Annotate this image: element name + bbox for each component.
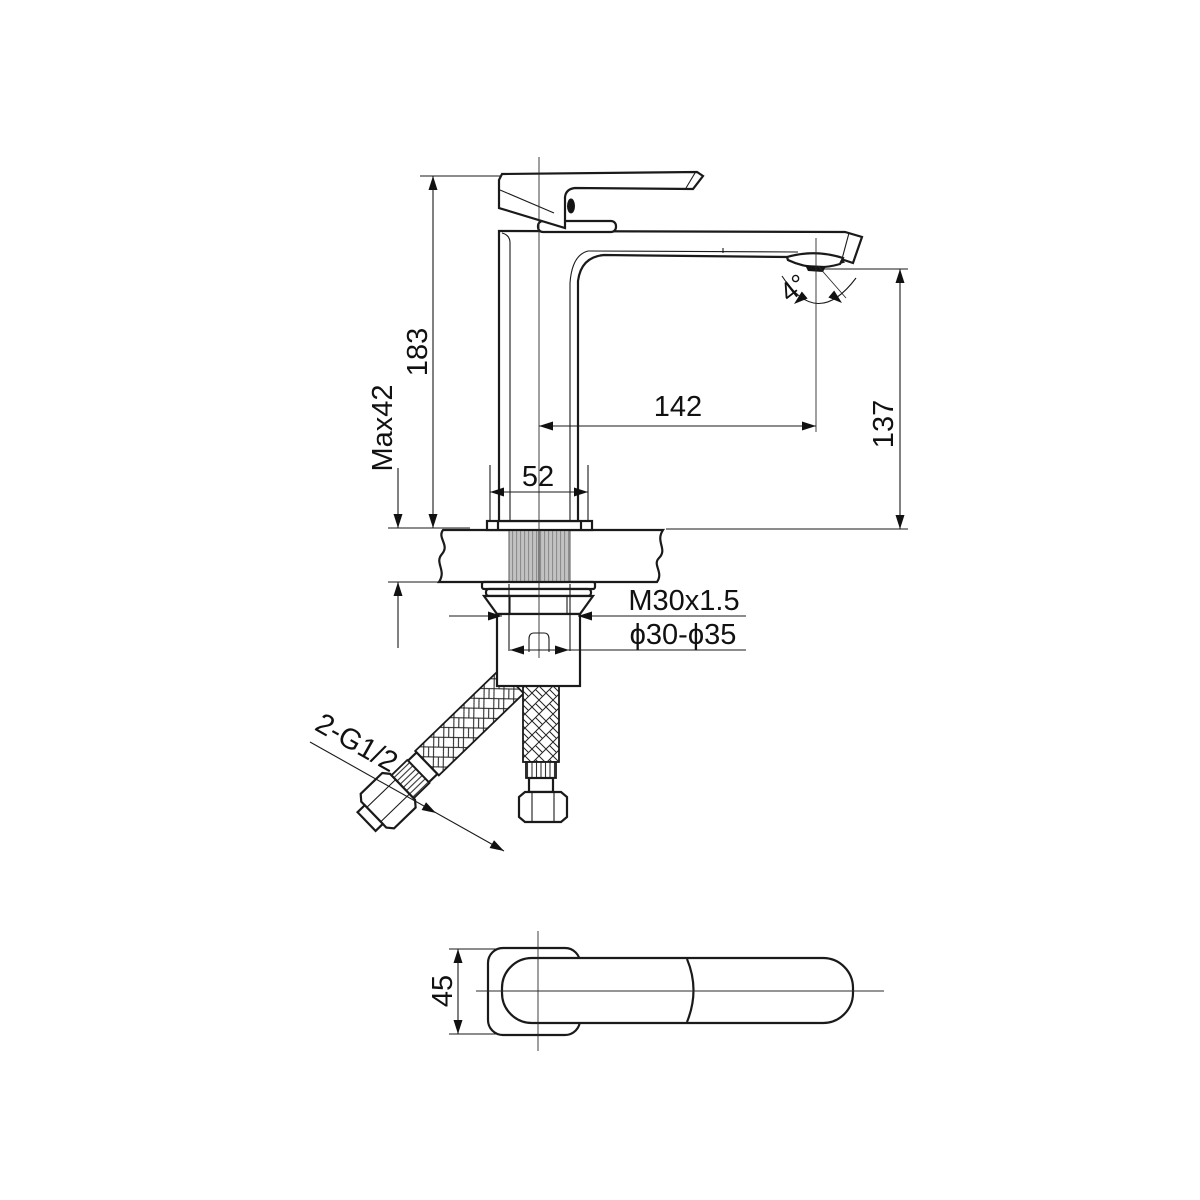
dim-142-label: 142 xyxy=(654,391,702,423)
side-view: 183 Max42 52 142 xyxy=(310,157,908,855)
threaded-shank xyxy=(509,530,570,582)
dim-183: 183 xyxy=(402,176,500,528)
thread-spec-label: M30x1.5 xyxy=(628,585,739,617)
bottom-view: 45 xyxy=(427,931,884,1051)
countertop-section xyxy=(439,530,663,582)
dim-4deg: 4° xyxy=(774,268,856,308)
dim-137-label: 137 xyxy=(868,400,900,448)
faucet-dimension-drawing: 183 Max42 52 142 xyxy=(0,0,1200,1200)
technical-drawing-page: 183 Max42 52 142 xyxy=(0,0,1200,1200)
dim-52-label: 52 xyxy=(522,461,554,493)
hole-diameter-label: ϕ30-ϕ35 xyxy=(630,619,737,651)
faucet-handle xyxy=(499,172,703,232)
dim-137: 137 xyxy=(666,269,908,529)
handle-lever xyxy=(499,172,703,228)
dim-max42: Max42 xyxy=(367,384,470,648)
dim-max42-label: Max42 xyxy=(367,384,399,471)
supply-hose-right xyxy=(519,682,567,822)
dim-4deg-label: 4° xyxy=(774,268,813,308)
dim-142: 142 xyxy=(539,391,816,431)
locknut xyxy=(484,596,593,614)
handle-spout-plan xyxy=(502,958,853,1023)
temp-indicator-dot xyxy=(567,199,575,214)
dim-45-label: 45 xyxy=(427,975,459,1007)
mounting-hardware xyxy=(482,582,595,686)
base-flange xyxy=(487,521,592,530)
dim-183-label: 183 xyxy=(402,328,434,376)
